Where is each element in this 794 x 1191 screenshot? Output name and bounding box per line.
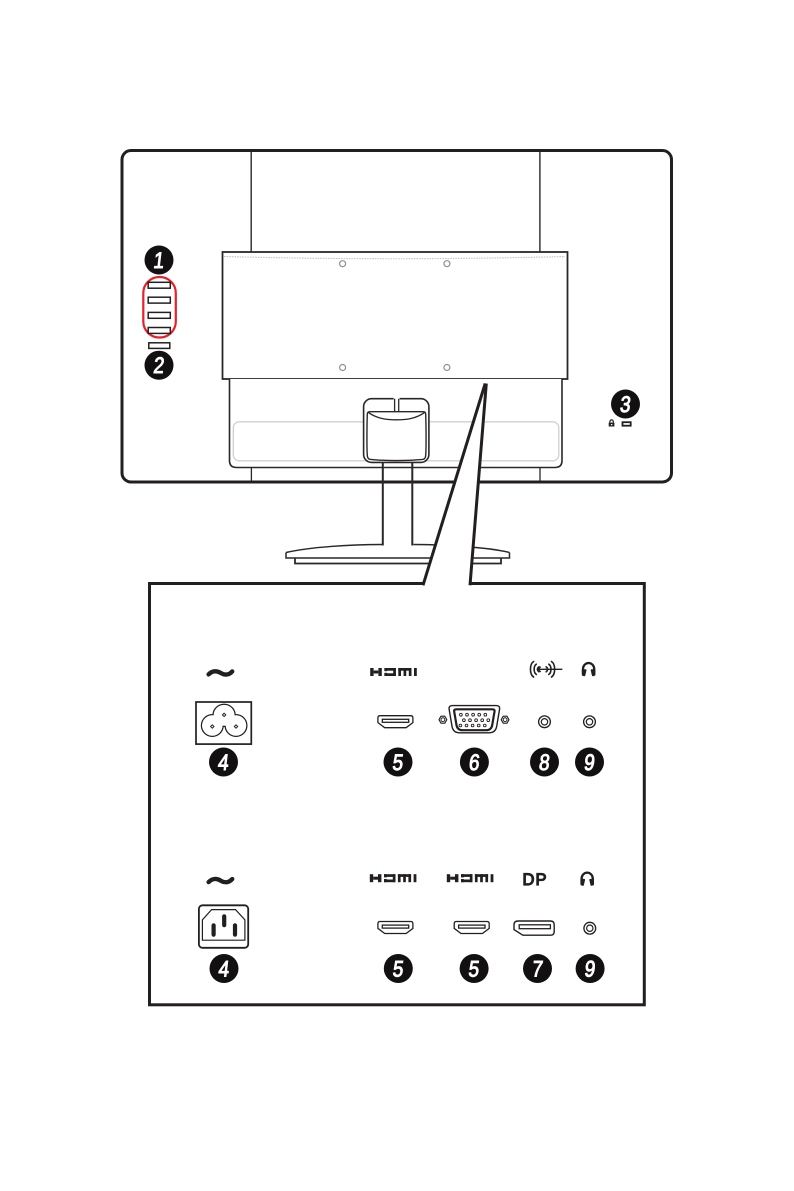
svg-text:DP: DP <box>522 871 547 889</box>
